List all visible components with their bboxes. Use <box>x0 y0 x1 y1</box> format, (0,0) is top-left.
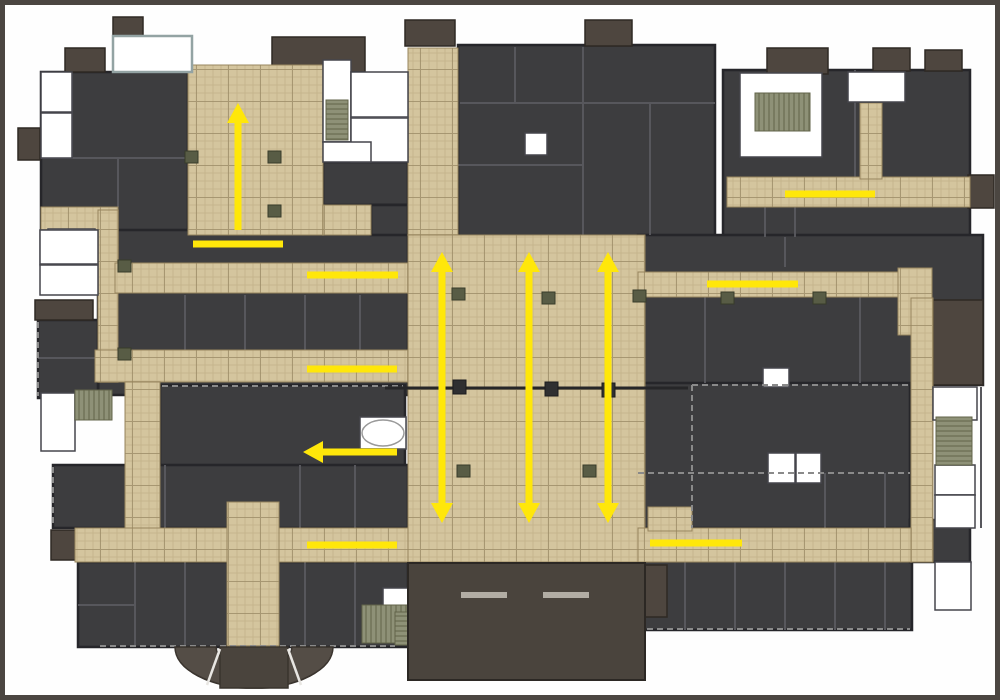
floor-plan-frame <box>0 0 1000 700</box>
structural-column <box>813 292 826 304</box>
corridor <box>860 103 882 179</box>
dark-room-block <box>458 45 715 237</box>
structural-column <box>457 465 470 477</box>
corridor <box>323 205 371 235</box>
entrance-step-bar <box>461 592 507 598</box>
accent-block <box>925 50 962 71</box>
structural-column <box>118 260 131 272</box>
dark-room-block <box>635 560 912 630</box>
accent-block <box>51 530 77 560</box>
white-room <box>351 72 408 117</box>
accent-block <box>35 300 93 320</box>
accent-block <box>18 128 40 160</box>
accent-block <box>873 48 910 71</box>
white-room <box>323 142 371 162</box>
structural-column <box>721 292 734 304</box>
white-room <box>768 453 795 483</box>
structural-column <box>268 151 281 163</box>
structural-column <box>452 288 465 300</box>
oval-table <box>362 420 404 446</box>
corridor <box>125 382 160 530</box>
white-room <box>935 562 971 610</box>
white-room <box>525 133 547 155</box>
accent-block <box>933 300 983 385</box>
joint-block <box>453 380 466 394</box>
white-room <box>935 465 975 495</box>
structural-column <box>185 151 198 163</box>
structural-column <box>268 205 281 217</box>
corridor <box>408 48 458 235</box>
fan-center-landing <box>220 647 288 688</box>
stair-run <box>755 93 810 131</box>
white-room <box>933 387 977 420</box>
white-room <box>40 265 98 295</box>
structural-column <box>583 465 596 477</box>
structural-column <box>633 290 646 302</box>
white-room <box>41 113 72 158</box>
white-room <box>41 393 75 451</box>
accent-block <box>405 20 455 46</box>
joint-block <box>545 382 558 396</box>
stair-run <box>395 612 409 645</box>
corridor <box>188 65 323 235</box>
corridor <box>227 502 279 647</box>
floor-plan <box>5 5 995 695</box>
corridor <box>911 298 933 562</box>
accent-block <box>968 175 994 208</box>
accent-block <box>767 48 828 74</box>
entrance-block <box>408 563 645 680</box>
structural-column <box>542 292 555 304</box>
white-room <box>796 453 821 483</box>
accent-block <box>585 20 632 46</box>
corridor <box>648 507 692 531</box>
accent-block <box>65 48 105 72</box>
dark-room-block <box>323 162 408 205</box>
white-room <box>935 495 975 528</box>
entrance-step-bar <box>543 592 589 598</box>
white-room <box>41 72 72 112</box>
white-room <box>848 72 905 102</box>
dark-room-block <box>371 205 408 235</box>
structural-column <box>118 348 131 360</box>
white-room <box>40 230 98 264</box>
outlined-room <box>113 36 192 72</box>
